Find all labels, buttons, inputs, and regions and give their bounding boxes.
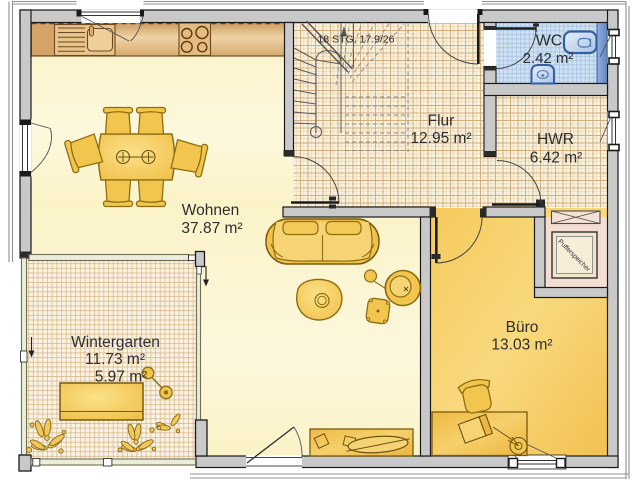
- svg-text:5.97 m²: 5.97 m²: [95, 369, 148, 386]
- svg-text:6.42 m²: 6.42 m²: [530, 150, 583, 167]
- svg-text:Flur: Flur: [428, 113, 455, 130]
- svg-text:Wohnen: Wohnen: [182, 202, 239, 219]
- svg-text:Wintergarten: Wintergarten: [71, 334, 160, 351]
- svg-text:13.03 m²: 13.03 m²: [491, 337, 552, 354]
- svg-text:Büro: Büro: [506, 319, 539, 336]
- svg-text:2.42 m²: 2.42 m²: [523, 50, 574, 67]
- svg-text:WC: WC: [536, 33, 563, 50]
- svg-text:HWR: HWR: [537, 131, 574, 148]
- svg-text:12.95 m²: 12.95 m²: [410, 130, 471, 147]
- svg-text:11.73 m²: 11.73 m²: [85, 351, 145, 368]
- svg-text:37.87 m²: 37.87 m²: [181, 220, 242, 237]
- svg-text:18 STG. 17.9/26: 18 STG. 17.9/26: [317, 34, 394, 46]
